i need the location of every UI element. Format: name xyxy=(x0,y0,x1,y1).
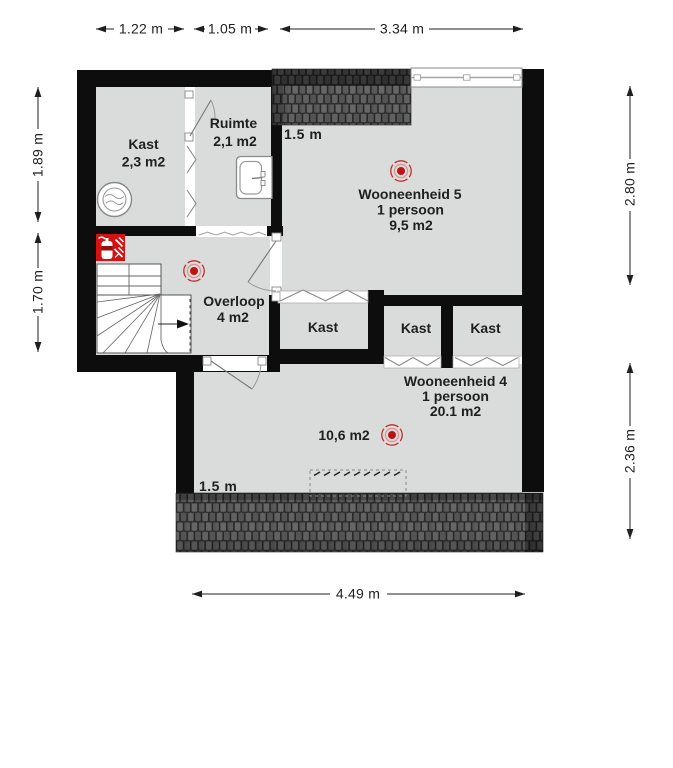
svg-text:20.1 m2: 20.1 m2 xyxy=(430,403,482,419)
svg-text:2,1 m2: 2,1 m2 xyxy=(213,133,257,149)
svg-text:Overloop: Overloop xyxy=(203,293,264,309)
svg-text:2,3 m2: 2,3 m2 xyxy=(122,154,166,170)
svg-text:Wooneenheid 5: Wooneenheid 5 xyxy=(358,186,461,202)
svg-text:1.5 m: 1.5 m xyxy=(199,478,237,494)
svg-text:1 persoon: 1 persoon xyxy=(422,388,489,404)
svg-text:1 persoon: 1 persoon xyxy=(377,202,444,218)
svg-text:1.70 m: 1.70 m xyxy=(30,270,46,314)
svg-text:Ruimte: Ruimte xyxy=(210,115,258,131)
svg-text:4.49 m: 4.49 m xyxy=(336,586,380,602)
svg-text:3.34 m: 3.34 m xyxy=(380,21,424,37)
svg-text:Kast: Kast xyxy=(401,320,432,336)
svg-text:2.80 m: 2.80 m xyxy=(622,162,638,206)
svg-text:1.89 m: 1.89 m xyxy=(30,133,46,177)
svg-text:2.36 m: 2.36 m xyxy=(622,429,638,473)
svg-text:1.5 m: 1.5 m xyxy=(284,126,322,142)
svg-text:1.05 m: 1.05 m xyxy=(208,21,252,37)
svg-text:10,6 m2: 10,6 m2 xyxy=(318,427,370,443)
svg-text:1.22 m: 1.22 m xyxy=(119,21,163,37)
svg-text:Wooneenheid 4: Wooneenheid 4 xyxy=(404,373,507,389)
svg-text:Kast: Kast xyxy=(128,136,159,152)
svg-text:Kast: Kast xyxy=(308,319,339,335)
svg-text:4 m2: 4 m2 xyxy=(217,309,249,325)
svg-text:Kast: Kast xyxy=(470,320,501,336)
svg-text:9,5 m2: 9,5 m2 xyxy=(389,217,433,233)
